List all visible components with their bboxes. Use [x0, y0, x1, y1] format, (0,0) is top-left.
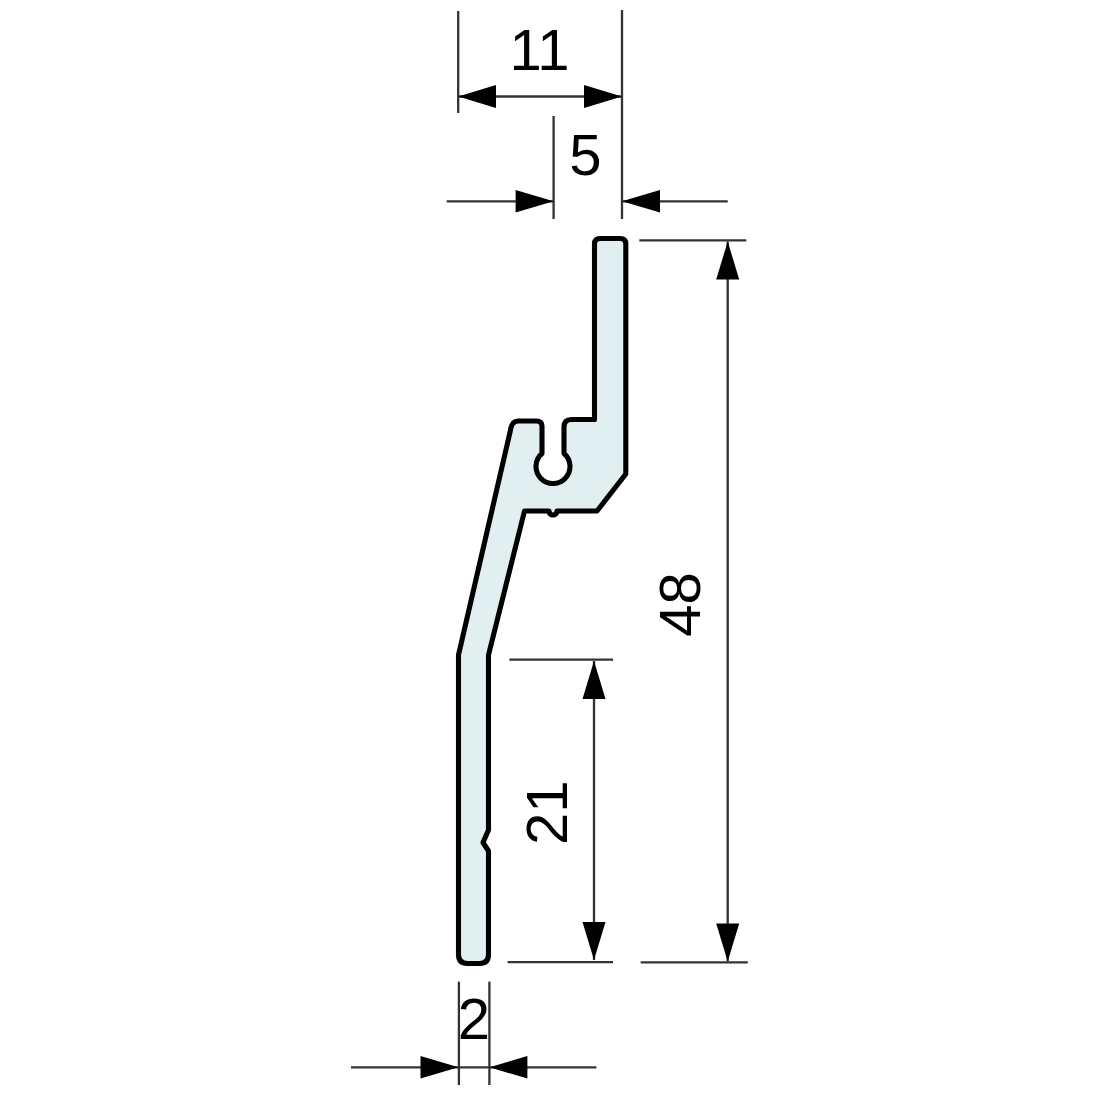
- svg-text:11: 11: [509, 17, 569, 82]
- svg-text:48: 48: [647, 572, 712, 637]
- svg-text:2: 2: [458, 986, 490, 1051]
- svg-text:21: 21: [514, 780, 579, 845]
- svg-text:5: 5: [569, 122, 601, 187]
